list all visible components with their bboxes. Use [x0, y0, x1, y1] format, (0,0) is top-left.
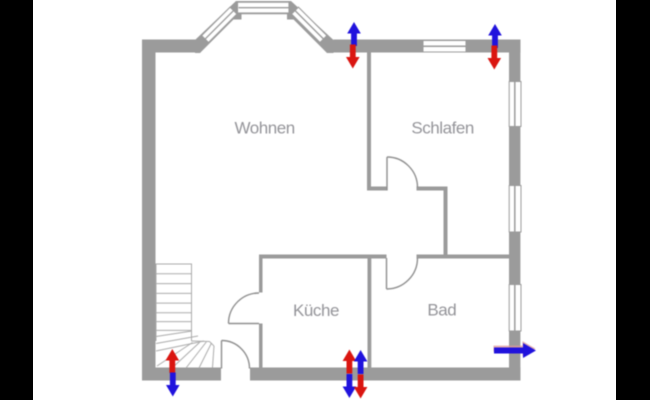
svg-text:Wohnen: Wohnen: [234, 118, 294, 137]
svg-text:Schlafen: Schlafen: [411, 119, 474, 138]
svg-text:Bad: Bad: [427, 301, 456, 320]
svg-text:Küche: Küche: [293, 301, 339, 320]
